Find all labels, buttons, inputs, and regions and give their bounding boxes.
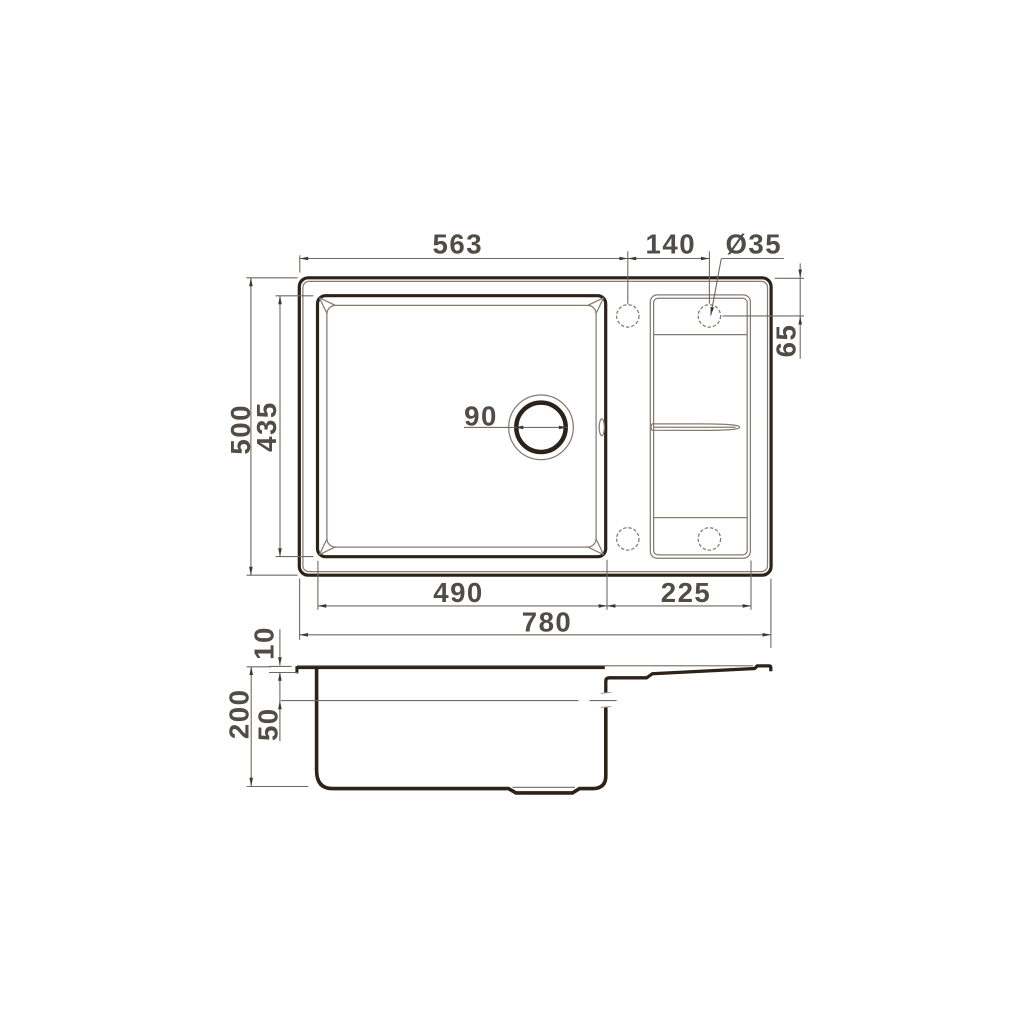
svg-text:490: 490 [433,577,484,608]
svg-text:140: 140 [646,228,697,259]
svg-text:Ø35: Ø35 [725,228,782,259]
svg-text:225: 225 [661,577,712,608]
svg-text:780: 780 [522,606,573,637]
svg-text:10: 10 [249,626,280,660]
svg-text:65: 65 [770,324,801,358]
svg-text:435: 435 [251,401,282,452]
svg-text:200: 200 [223,689,254,740]
svg-text:50: 50 [252,707,283,741]
svg-text:563: 563 [433,228,484,259]
svg-text:90: 90 [464,401,498,432]
